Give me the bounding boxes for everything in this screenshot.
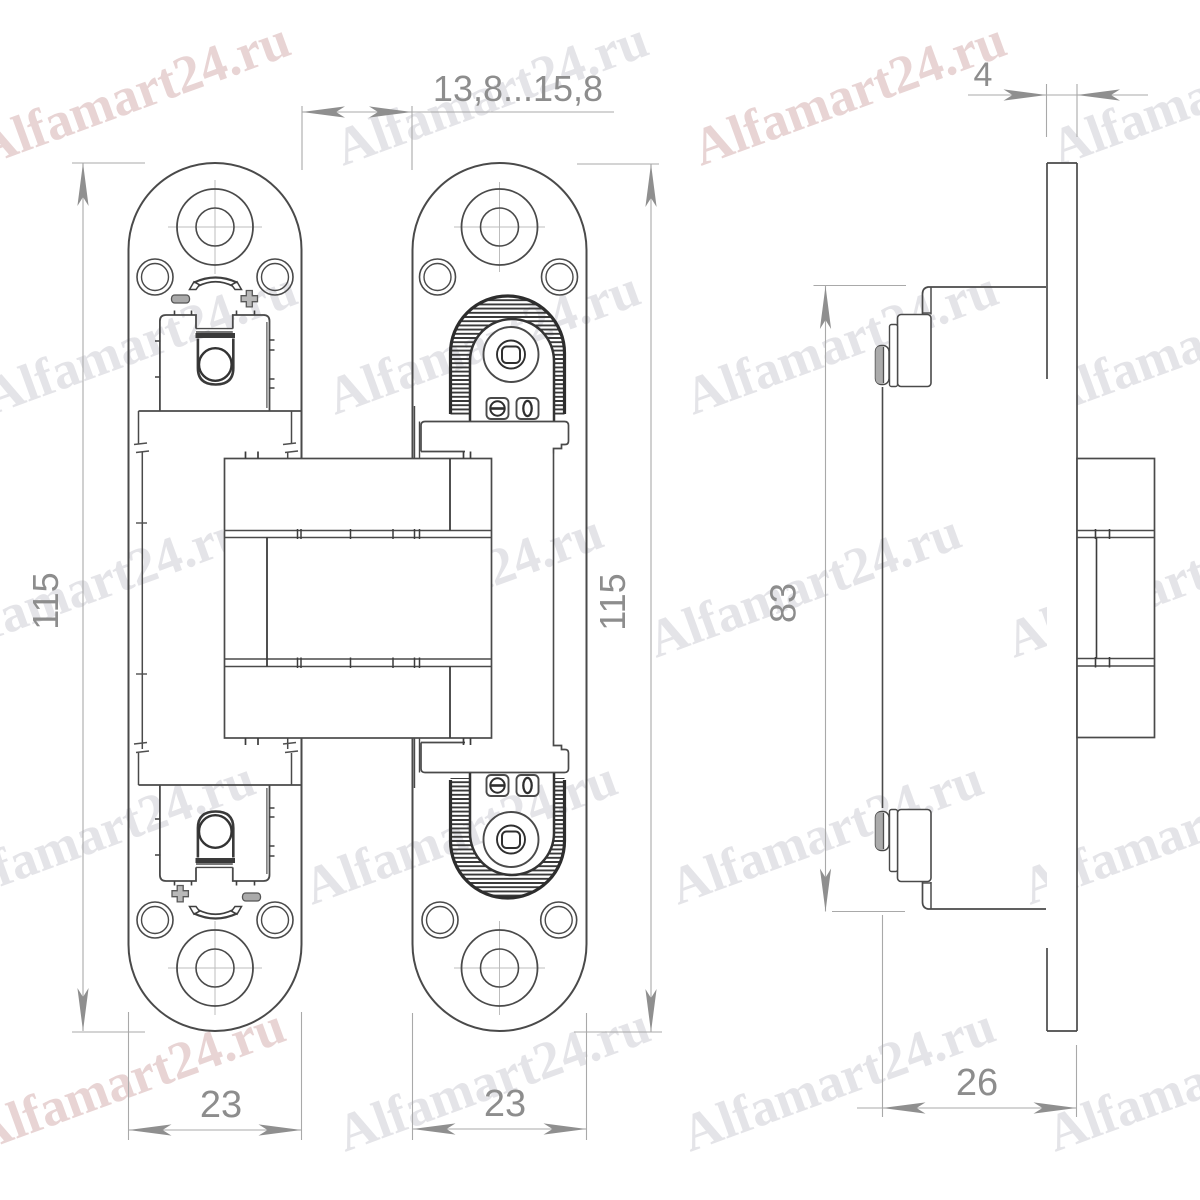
svg-text:13,8...15,8: 13,8...15,8 [433, 68, 603, 109]
svg-text:23: 23 [484, 1083, 526, 1125]
svg-text:4: 4 [974, 56, 993, 94]
svg-text:26: 26 [956, 1062, 998, 1104]
svg-text:83: 83 [763, 583, 804, 623]
svg-text:115: 115 [592, 573, 633, 630]
svg-text:23: 23 [200, 1084, 242, 1126]
svg-text:115: 115 [25, 572, 66, 629]
